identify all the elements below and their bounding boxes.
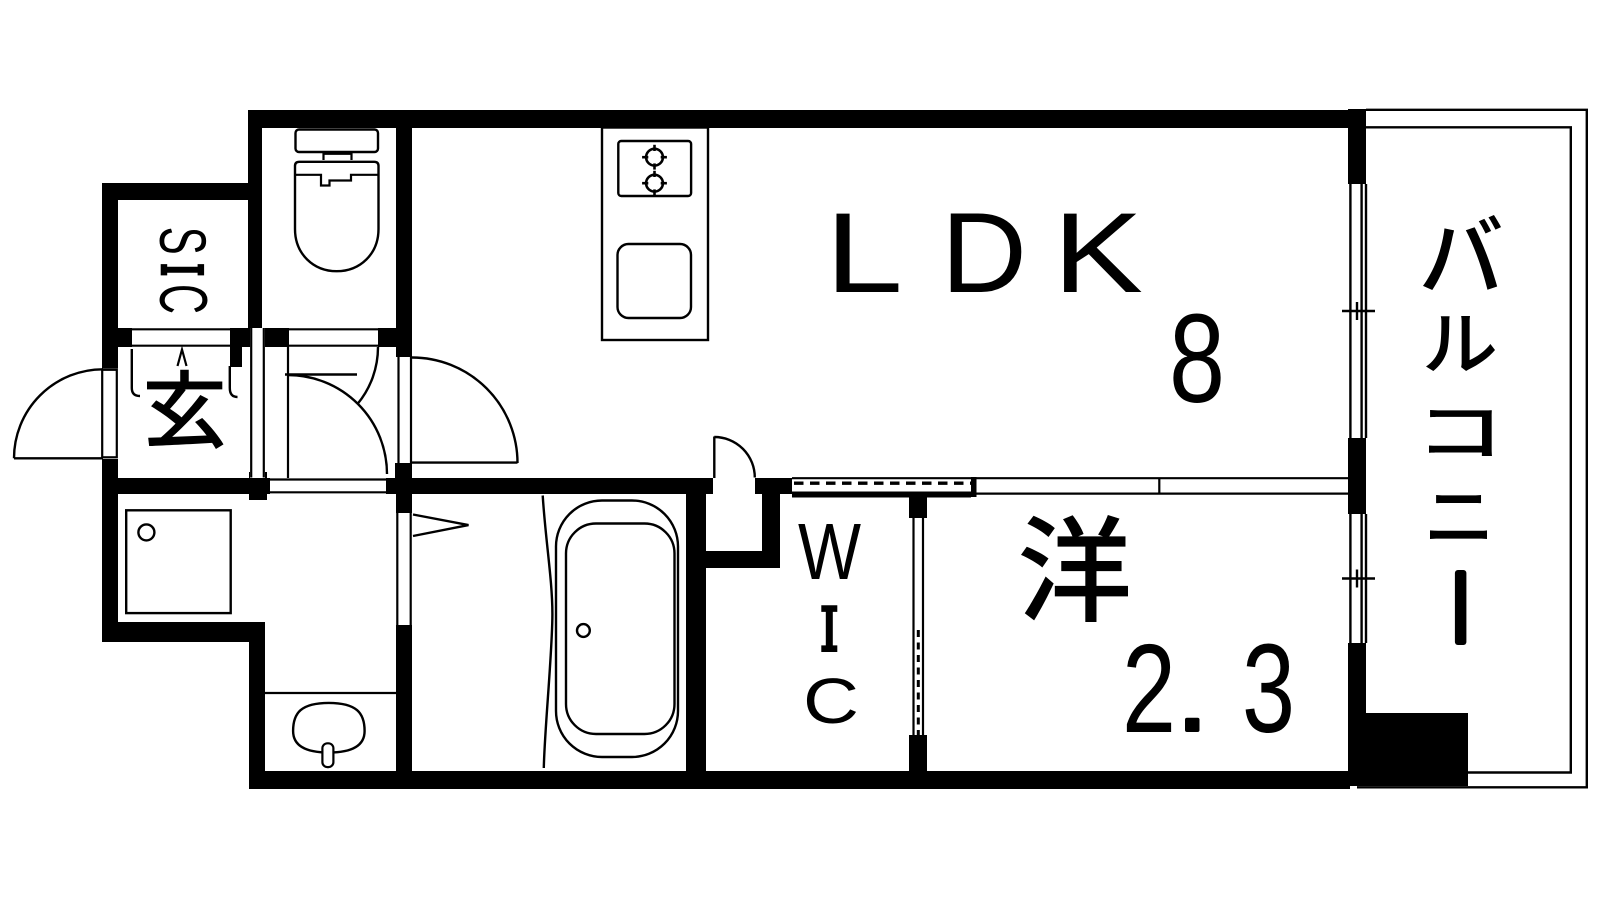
svg-text:C: C — [145, 284, 221, 314]
svg-text:K: K — [1053, 190, 1143, 317]
svg-text:8: 8 — [1169, 288, 1225, 429]
svg-text:2: 2 — [1122, 618, 1176, 759]
svg-text:L: L — [825, 190, 903, 317]
svg-text:3: 3 — [1242, 618, 1295, 759]
svg-text:W: W — [798, 507, 861, 596]
svg-text:S: S — [146, 227, 220, 255]
svg-text:C: C — [803, 665, 859, 737]
svg-text:D: D — [941, 190, 1027, 317]
